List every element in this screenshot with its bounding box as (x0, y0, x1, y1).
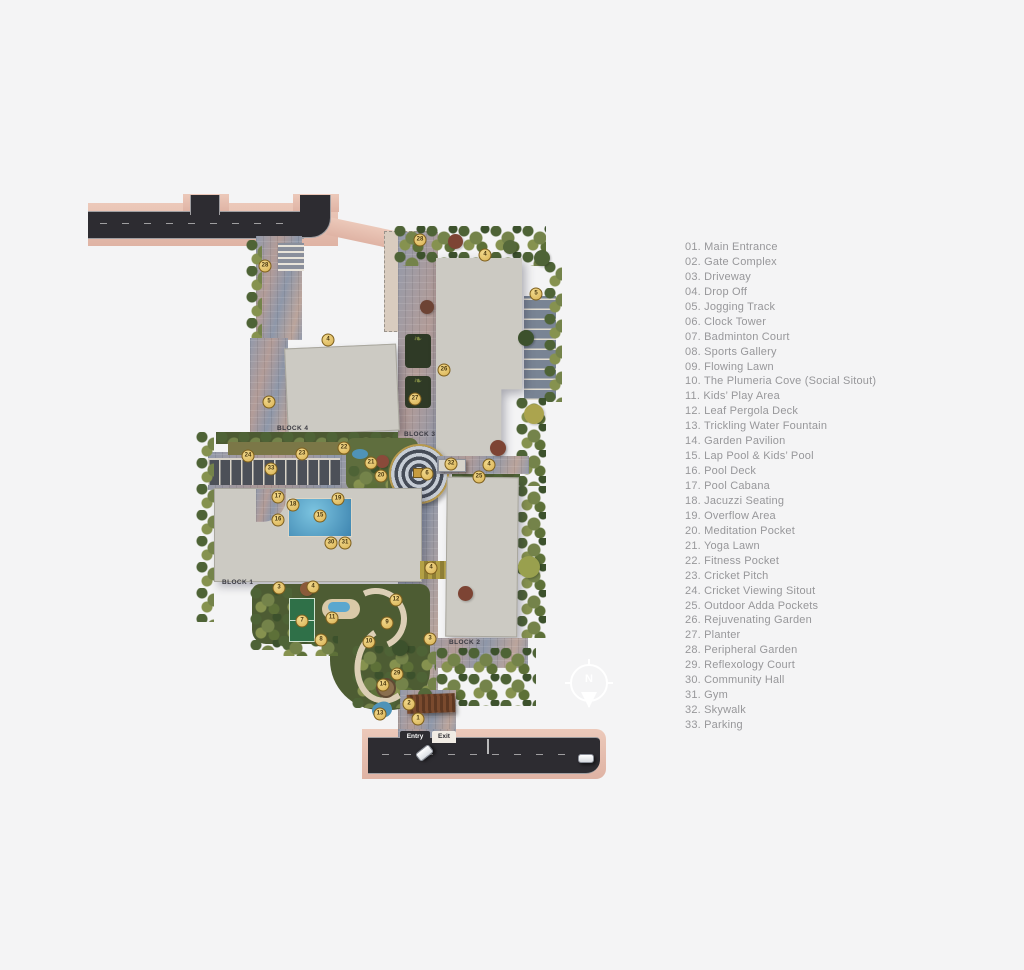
tree-accent (490, 440, 506, 456)
amenity-marker: 25 (473, 471, 486, 484)
amenity-marker: 26 (438, 364, 451, 377)
legend-item: 06. Clock Tower (685, 315, 915, 330)
legend-item: 16. Pool Deck (685, 464, 915, 479)
top-road-lane-line (100, 223, 296, 224)
tree-accent (458, 586, 473, 601)
kids-play-splash (328, 602, 350, 612)
amenity-marker: 13 (374, 708, 387, 721)
legend-item: 14. Garden Pavilion (685, 434, 915, 449)
amenity-marker: 5 (263, 396, 276, 409)
legend-item: 18. Jacuzzi Seating (685, 494, 915, 509)
amenity-marker: 4 (479, 249, 492, 262)
amenity-marker: 27 (409, 393, 422, 406)
west-tree-band (196, 432, 214, 622)
amenity-marker: 28 (414, 234, 427, 247)
amenity-marker: 5 (530, 288, 543, 301)
block3-building-wrap (436, 258, 522, 457)
amenity-marker: 6 (421, 468, 434, 481)
amenity-marker: 32 (445, 458, 458, 471)
amenity-marker: 12 (390, 594, 403, 607)
legend-item: 31. Gym (685, 688, 915, 703)
amenity-marker: 3 (273, 582, 286, 595)
block4-building (284, 344, 400, 436)
legend-item: 04. Drop Off (685, 285, 915, 300)
legend-item: 23. Cricket Pitch (685, 569, 915, 584)
top-road (88, 211, 304, 239)
legend-item: 30. Community Hall (685, 673, 915, 688)
amenity-marker: 11 (326, 612, 339, 625)
amenity-marker: 4 (483, 459, 496, 472)
legend-item: 20. Meditation Pocket (685, 524, 915, 539)
legend-item: 29. Reflexology Court (685, 658, 915, 673)
amenity-marker: 29 (391, 668, 404, 681)
legend-item: 15. Lap Pool & Kids’ Pool (685, 449, 915, 464)
legend-item: 28. Peripheral Garden (685, 643, 915, 658)
top-road-branch-up-left (190, 195, 220, 215)
legend-item: 09. Flowing Lawn (685, 360, 915, 375)
amenity-marker: 22 (338, 442, 351, 455)
legend-item: 07. Badminton Court (685, 330, 915, 345)
legend-item: 27. Planter (685, 628, 915, 643)
bottom-road-stop-line (487, 739, 489, 754)
amenity-marker: 33 (265, 463, 278, 476)
legend-item: 13. Trickling Water Fountain (685, 419, 915, 434)
amenity-marker: 31 (339, 537, 352, 550)
amenity-marker: 24 (242, 450, 255, 463)
legend-item: 26. Rejuvenating Garden (685, 613, 915, 628)
legend-item: 24. Cricket Viewing Sitout (685, 584, 915, 599)
tree-accent (518, 556, 540, 578)
block4-label: BLOCK 4 (277, 425, 308, 432)
amenity-marker: 16 (272, 514, 285, 527)
legend-item: 08. Sports Gallery (685, 345, 915, 360)
amenity-marker: 14 (377, 679, 390, 692)
block3-building (436, 258, 522, 457)
tree-accent (534, 250, 550, 266)
block3-label: BLOCK 3 (404, 431, 435, 438)
tree-accent (518, 330, 534, 346)
car-parked (578, 754, 594, 763)
compass-north-icon: N (570, 664, 608, 702)
tree-accent (503, 240, 517, 254)
compass-north-letter: N (572, 673, 606, 685)
north-driveway-tree-band (246, 240, 262, 344)
block2-label: BLOCK 2 (449, 639, 480, 646)
tree-accent (448, 234, 463, 249)
legend-item: 10. The Plumeria Cove (Social Sitout) (685, 374, 915, 389)
amenity-marker: 17 (272, 491, 285, 504)
legend: 01. Main Entrance02. Gate Complex03. Dri… (685, 240, 915, 733)
amenity-marker: 1 (412, 713, 425, 726)
leaf-pergola-planter-1: ❧ (405, 334, 431, 368)
amenity-marker: 20 (375, 470, 388, 483)
east-tree-band-upper (544, 262, 562, 402)
amenity-marker: 4 (307, 581, 320, 594)
block2-building (445, 477, 519, 638)
legend-item: 22. Fitness Pocket (685, 554, 915, 569)
amenity-marker: 28 (259, 260, 272, 273)
exit-label-tab: Exit (432, 731, 456, 743)
amenity-marker: 30 (325, 537, 338, 550)
amenity-marker: 23 (296, 448, 309, 461)
block1-label: BLOCK 1 (222, 579, 253, 586)
amenity-marker: 8 (315, 634, 328, 647)
amenity-marker: 10 (363, 636, 376, 649)
tree-accent (524, 404, 544, 424)
entry-label-tab: Entry (400, 731, 430, 743)
amenity-marker: 19 (332, 493, 345, 506)
amenity-marker: 4 (425, 562, 438, 575)
amenity-marker: 21 (365, 457, 378, 470)
amenity-marker: 3 (424, 633, 437, 646)
legend-item: 03. Driveway (685, 270, 915, 285)
amenity-marker: 9 (381, 617, 394, 630)
amenity-marker: 18 (287, 499, 300, 512)
legend-item: 19. Overflow Area (685, 509, 915, 524)
legend-item: 11. Kids’ Play Area (685, 389, 915, 404)
north-entry-steps (278, 243, 304, 271)
legend-item: 12. Leaf Pergola Deck (685, 404, 915, 419)
legend-item: 02. Gate Complex (685, 255, 915, 270)
bottom-road-lane-line (382, 754, 587, 755)
amenity-marker: 15 (314, 510, 327, 523)
amenity-marker: 4 (322, 334, 335, 347)
tree-accent (420, 300, 434, 314)
legend-item: 01. Main Entrance (685, 240, 915, 255)
legend-item: 33. Parking (685, 718, 915, 733)
legend-item: 05. Jogging Track (685, 300, 915, 315)
legend-item: 17. Pool Cabana (685, 479, 915, 494)
amenity-marker: 2 (403, 698, 416, 711)
legend-item: 25. Outdoor Adda Pockets (685, 599, 915, 614)
legend-item: 32. Skywalk (685, 703, 915, 718)
tree-accent (376, 455, 389, 468)
amenity-marker: 7 (296, 615, 309, 628)
legend-item: 21. Yoga Lawn (685, 539, 915, 554)
